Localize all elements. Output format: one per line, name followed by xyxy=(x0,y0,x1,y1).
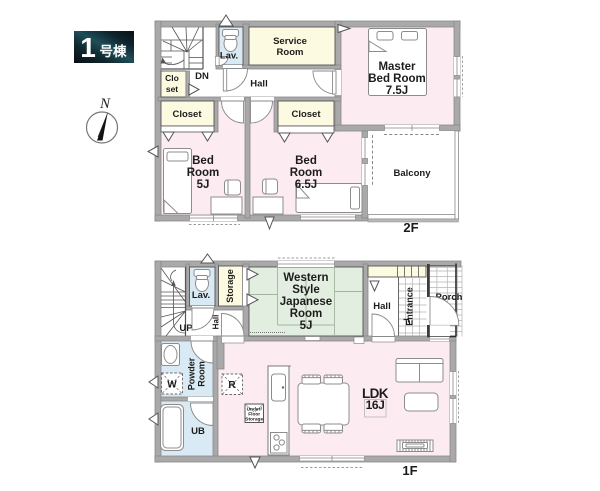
svg-text:5J: 5J xyxy=(300,320,313,332)
svg-text:Balcony: Balcony xyxy=(394,168,432,179)
svg-text:Bed: Bed xyxy=(295,155,317,167)
svg-text:Lav.: Lav. xyxy=(220,51,238,62)
svg-text:Powder: Powder xyxy=(187,357,197,390)
svg-text:Style: Style xyxy=(292,284,320,296)
svg-text:UB: UB xyxy=(191,426,205,437)
svg-text:Bed: Bed xyxy=(192,155,214,167)
svg-text:Room: Room xyxy=(277,47,304,58)
svg-text:Hall: Hall xyxy=(212,315,221,330)
svg-text:Room: Room xyxy=(197,361,207,387)
svg-text:Bed Room: Bed Room xyxy=(368,73,426,85)
svg-text:W: W xyxy=(167,380,177,391)
svg-text:Western: Western xyxy=(283,272,328,284)
svg-text:16J: 16J xyxy=(366,398,385,412)
svg-text:Hall: Hall xyxy=(250,79,267,90)
svg-text:Japanese: Japanese xyxy=(280,296,332,308)
svg-text:号棟: 号棟 xyxy=(100,43,127,59)
svg-text:set: set xyxy=(166,84,178,94)
svg-text:Storage: Storage xyxy=(225,269,235,303)
svg-text:Closet: Closet xyxy=(291,109,321,120)
svg-text:Service: Service xyxy=(273,36,307,47)
svg-text:DN: DN xyxy=(195,71,209,82)
svg-text:Room: Room xyxy=(187,167,220,179)
svg-text:Storage: Storage xyxy=(245,417,263,423)
svg-text:7.5J: 7.5J xyxy=(386,85,408,97)
svg-text:2F: 2F xyxy=(403,220,418,235)
svg-text:6.5J: 6.5J xyxy=(295,179,317,191)
svg-text:Clo: Clo xyxy=(165,73,179,83)
svg-text:UP: UP xyxy=(179,323,193,334)
svg-text:Closet: Closet xyxy=(172,109,202,120)
svg-text:Room: Room xyxy=(290,308,323,320)
svg-text:1F: 1F xyxy=(402,463,417,478)
svg-text:Room: Room xyxy=(290,167,323,179)
svg-text:N: N xyxy=(99,96,111,112)
svg-text:5J: 5J xyxy=(197,179,210,191)
svg-text:Hall: Hall xyxy=(373,301,390,312)
svg-text:Master: Master xyxy=(378,61,416,73)
svg-text:R: R xyxy=(228,380,236,391)
svg-text:1: 1 xyxy=(80,32,96,63)
